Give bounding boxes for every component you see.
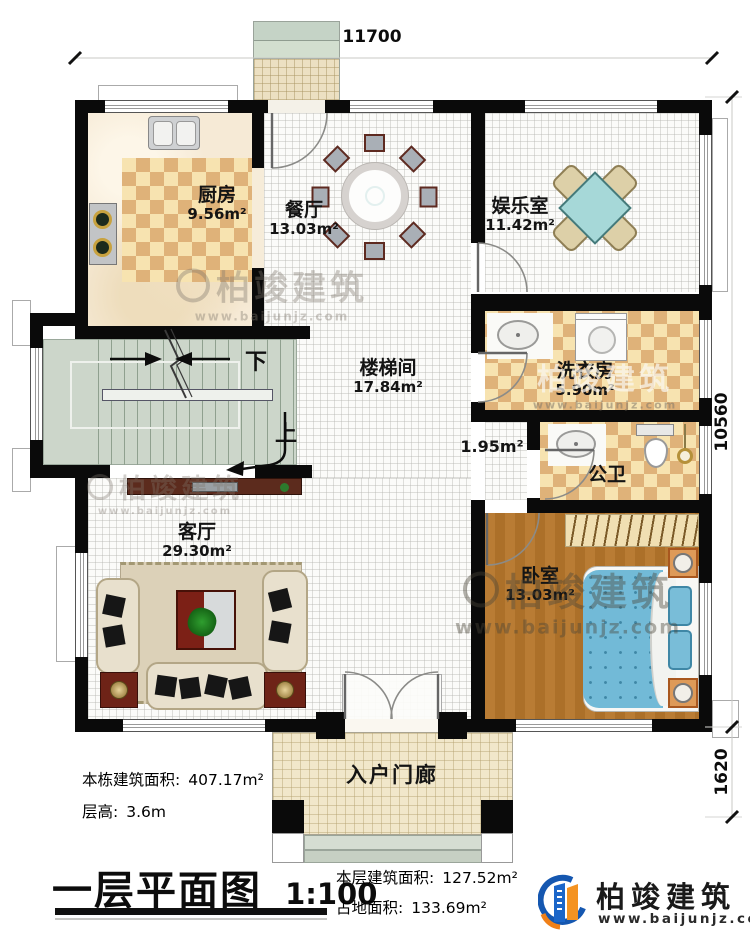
info-floor-area: 本层建筑面积:127.52m² bbox=[336, 866, 518, 888]
info-value: 133.69m² bbox=[411, 899, 487, 917]
room-label-kitchen: 厨房 9.56m² bbox=[187, 185, 246, 223]
room-name: 入户门廊 bbox=[346, 764, 438, 788]
table-lamp bbox=[110, 681, 128, 699]
info-value: 3.6m bbox=[126, 803, 166, 821]
sofa-pillow bbox=[204, 674, 228, 698]
room-area: 1.95m² bbox=[460, 438, 523, 456]
room-name: 餐厅 bbox=[269, 200, 339, 221]
decor-plant bbox=[280, 483, 289, 492]
room-area: 17.84m² bbox=[353, 379, 423, 396]
room-label-dining: 餐厅 13.03m² bbox=[269, 200, 339, 238]
stove-burner bbox=[93, 238, 112, 257]
sink-drain bbox=[516, 333, 520, 337]
wall bbox=[75, 113, 88, 326]
porch-step bbox=[304, 835, 482, 850]
window bbox=[699, 426, 712, 494]
stair-down-label: 下 bbox=[245, 344, 267, 376]
window bbox=[699, 320, 712, 398]
wall bbox=[471, 294, 699, 311]
wall bbox=[252, 113, 264, 168]
washer-drum bbox=[588, 326, 616, 354]
dining-table bbox=[342, 163, 408, 229]
info-value: 127.52m² bbox=[442, 869, 518, 887]
window-ledge bbox=[56, 546, 76, 662]
title-underline bbox=[55, 908, 327, 915]
stove-burner bbox=[93, 210, 112, 229]
title-underline-shadow bbox=[55, 918, 327, 920]
washer-panel bbox=[576, 319, 626, 320]
coffee-table bbox=[176, 590, 236, 650]
wall bbox=[471, 410, 699, 422]
room-label-laundry: 洗衣房 5.90m² bbox=[555, 361, 614, 399]
info-floor-height: 层高:3.6m bbox=[82, 800, 166, 822]
wall bbox=[438, 712, 467, 739]
window-ledge bbox=[98, 85, 238, 101]
window bbox=[525, 100, 657, 113]
wall bbox=[471, 113, 485, 243]
info-label: 占地面积: bbox=[336, 899, 403, 917]
room-area: 11.42m² bbox=[485, 217, 555, 234]
door-opening bbox=[345, 719, 438, 732]
sofa-pillow bbox=[179, 677, 202, 700]
wall bbox=[471, 500, 485, 719]
window-ledge bbox=[712, 118, 728, 292]
room-label-stairwell: 楼梯间 17.84m² bbox=[353, 358, 423, 396]
nightstand-lamp bbox=[673, 553, 693, 573]
wall bbox=[255, 465, 312, 478]
room-name: 客厅 bbox=[162, 522, 232, 543]
wall bbox=[316, 712, 345, 739]
bathroom-sink-counter bbox=[548, 424, 606, 466]
porch-column bbox=[481, 800, 513, 833]
rear-stoop bbox=[253, 21, 340, 101]
window bbox=[350, 100, 433, 113]
dining-chair bbox=[364, 134, 385, 152]
door-opening bbox=[268, 100, 325, 113]
room-name: 厨房 bbox=[187, 185, 246, 206]
table-lamp bbox=[276, 681, 294, 699]
washing-machine bbox=[575, 313, 627, 361]
sink-basin bbox=[153, 121, 173, 146]
porch-column bbox=[272, 800, 304, 833]
shower-head bbox=[677, 448, 693, 464]
window bbox=[30, 348, 43, 440]
porch-column-base bbox=[481, 833, 513, 863]
nightstand-lamp bbox=[673, 683, 693, 703]
logo-site: www.baijunjz.com bbox=[598, 911, 750, 927]
hall-nook-floor bbox=[485, 422, 527, 500]
window-ledge bbox=[712, 700, 739, 738]
info-value: 407.17m² bbox=[188, 771, 264, 789]
info-label: 本层建筑面积: bbox=[336, 869, 434, 887]
sink-drain bbox=[574, 442, 578, 446]
wall bbox=[30, 465, 110, 478]
nightstand bbox=[668, 678, 698, 708]
room-label-living: 客厅 29.30m² bbox=[162, 522, 232, 560]
stoop-step bbox=[254, 41, 339, 59]
room-label-entertainment: 娱乐室 11.42m² bbox=[485, 196, 555, 234]
dim-top-label: 11700 bbox=[342, 27, 401, 47]
tv bbox=[192, 482, 238, 492]
entry-threshold bbox=[342, 674, 442, 720]
stair-up-label: 上 bbox=[275, 416, 297, 448]
plant bbox=[184, 604, 220, 640]
tv-cabinet bbox=[127, 478, 302, 495]
room-label-porch: 入户门廊 bbox=[346, 764, 438, 788]
info-label: 层高: bbox=[82, 803, 118, 821]
room-name: 楼梯间 bbox=[353, 358, 423, 379]
window bbox=[516, 719, 652, 732]
dim-right-main-label: 10560 bbox=[712, 392, 732, 451]
room-name: 卧室 bbox=[505, 566, 575, 587]
nightstand bbox=[668, 548, 698, 578]
room-area: 9.56m² bbox=[187, 206, 246, 223]
side-table bbox=[100, 672, 138, 708]
room-area: 29.30m² bbox=[162, 543, 232, 560]
sink-basin bbox=[176, 121, 196, 146]
window-ledge bbox=[12, 448, 31, 492]
stoop-landing bbox=[254, 59, 339, 102]
room-label-bathroom: 公卫 bbox=[588, 464, 626, 485]
room-area: 13.03m² bbox=[505, 587, 575, 604]
kitchen-sink bbox=[148, 116, 200, 150]
sofa-right bbox=[262, 570, 308, 672]
side-table bbox=[264, 672, 306, 708]
sofa-pillow bbox=[102, 624, 125, 647]
brand-logo: 柏竣建筑 www.baijunjz.com bbox=[538, 872, 743, 932]
wardrobe bbox=[565, 514, 699, 547]
window bbox=[75, 553, 88, 657]
toilet-tank bbox=[636, 424, 674, 436]
bed-pillow bbox=[668, 630, 692, 670]
window bbox=[105, 100, 228, 113]
wall bbox=[538, 500, 699, 513]
bed-pillow bbox=[668, 586, 692, 626]
dim-right-porch-label: 1620 bbox=[712, 748, 732, 795]
dining-table-center bbox=[365, 186, 385, 206]
dining-chair bbox=[364, 242, 385, 260]
logo-name: 柏竣建筑 bbox=[596, 874, 736, 916]
sofa-pillow bbox=[155, 675, 178, 698]
window-ledge bbox=[12, 300, 31, 346]
room-label-bedroom: 卧室 13.03m² bbox=[505, 566, 575, 604]
door-opening bbox=[252, 168, 264, 268]
kitchen-stove bbox=[89, 203, 117, 265]
sofa-pillow bbox=[102, 594, 126, 618]
info-building-total: 本栋建筑面积:407.17m² bbox=[82, 768, 264, 790]
room-name: 洗衣房 bbox=[555, 361, 614, 382]
window bbox=[123, 719, 265, 732]
dining-chair bbox=[420, 187, 438, 208]
room-name: 娱乐室 bbox=[485, 196, 555, 217]
wall bbox=[471, 311, 485, 353]
stoop-step bbox=[254, 22, 339, 41]
laundry-sink-counter bbox=[487, 313, 553, 359]
sofa-pillow bbox=[268, 620, 291, 643]
window bbox=[699, 135, 712, 285]
wall bbox=[75, 326, 310, 339]
info-label: 本栋建筑面积: bbox=[82, 771, 180, 789]
shower-cord bbox=[684, 424, 686, 450]
room-area: 13.03m² bbox=[269, 221, 339, 238]
stair-handrail bbox=[102, 389, 273, 401]
room-area: 5.90m² bbox=[555, 382, 614, 399]
floor-plan-page: 厨房 9.56m² 餐厅 13.03m² 娱乐室 11.42m² 楼梯间 17.… bbox=[0, 0, 750, 940]
info-land-area: 占地面积:133.69m² bbox=[336, 896, 487, 918]
window bbox=[699, 583, 712, 675]
wall bbox=[30, 313, 88, 326]
sofa-pillow bbox=[228, 676, 252, 700]
room-label-nook: 1.95m² bbox=[460, 438, 523, 456]
wall bbox=[527, 422, 540, 450]
logo-icon bbox=[538, 872, 586, 930]
room-name: 公卫 bbox=[588, 464, 626, 485]
wall bbox=[252, 268, 264, 326]
